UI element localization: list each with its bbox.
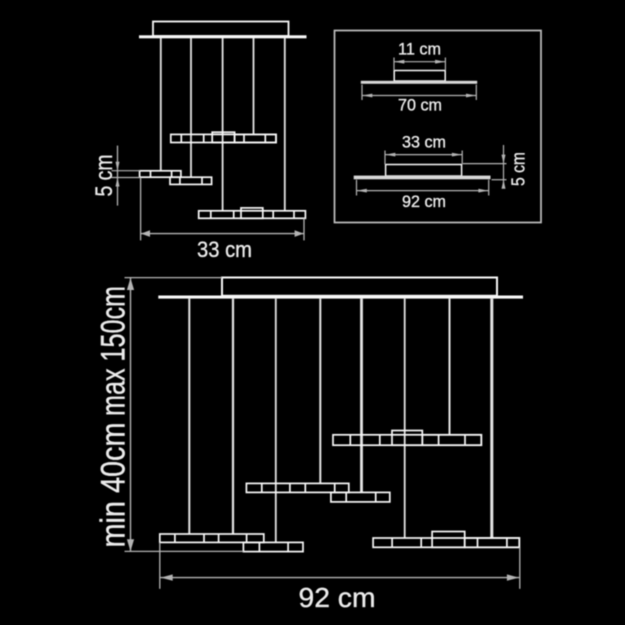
- svg-text:max 150cm: max 150cm: [95, 286, 133, 416]
- svg-text:5 cm: 5 cm: [508, 152, 529, 186]
- svg-text:min 40cm: min 40cm: [95, 423, 133, 548]
- svg-text:92 cm: 92 cm: [402, 192, 446, 211]
- svg-text:11 cm: 11 cm: [398, 40, 441, 59]
- svg-text:33 cm: 33 cm: [197, 237, 252, 262]
- svg-text:5 cm: 5 cm: [91, 155, 118, 197]
- svg-text:70 cm: 70 cm: [398, 96, 442, 115]
- svg-text:33 cm: 33 cm: [402, 133, 446, 152]
- svg-text:92 cm: 92 cm: [299, 582, 376, 613]
